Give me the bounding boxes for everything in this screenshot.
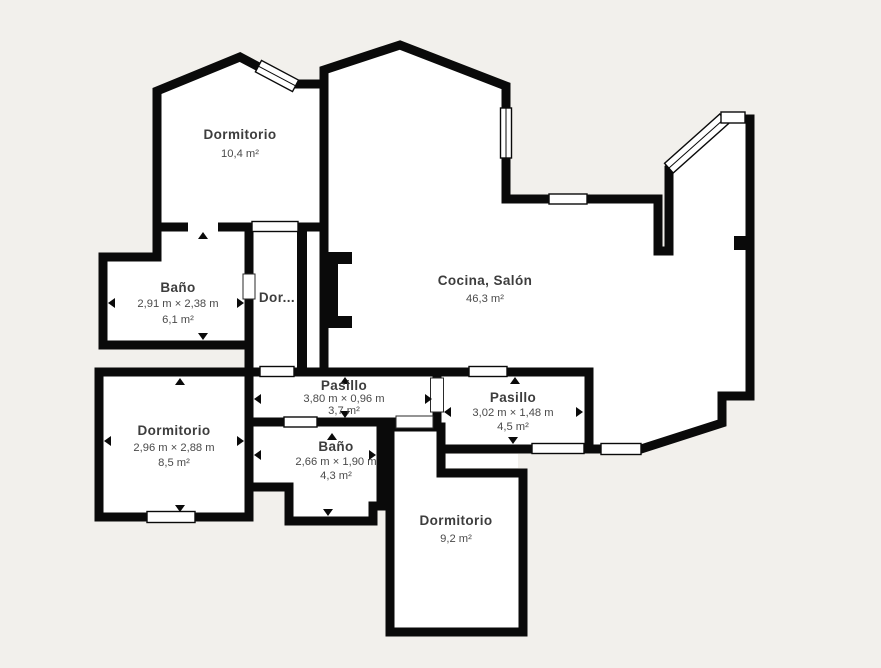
room-label-area: 8,5 m² <box>158 457 190 469</box>
window-right-hall-top <box>469 367 507 377</box>
room-label-dimensions: 3,02 m × 1,48 m <box>472 407 553 419</box>
room-label-area: 9,2 m² <box>440 533 472 545</box>
room-label-name: Dormitorio <box>204 127 277 142</box>
floorplan: Dormitorio 10,4 m² Cocina, Salón 46,3 m²… <box>0 0 881 668</box>
room-label-area: 4,5 m² <box>497 421 529 433</box>
opening-banio-top <box>188 223 218 232</box>
room-label-area: 4,3 m² <box>320 470 352 482</box>
window-central-hall-top <box>260 367 294 377</box>
window-right-hall-bottom <box>532 444 584 454</box>
room-label-name: Baño <box>160 280 195 295</box>
wall-pillar-stub <box>734 236 750 250</box>
room-dormitorio-topleft <box>157 57 324 227</box>
room-label-dimensions: 2,96 m × 2,88 m <box>133 442 214 454</box>
room-label-name: Baño <box>318 439 353 454</box>
room-label-name: Dormitorio <box>420 513 493 528</box>
door-dor-room <box>243 274 255 299</box>
room-label-dimensions: 2,91 m × 2,38 m <box>137 298 218 310</box>
door-hall-to-bedroom <box>396 416 433 428</box>
room-label-name: Dor... <box>259 290 295 305</box>
room-label-dimensions: 3,80 m × 0,96 m <box>303 393 384 405</box>
window-dor-room-top <box>252 222 298 232</box>
room-label-area: 10,4 m² <box>221 148 259 160</box>
window-banio-bottom-top <box>284 417 317 427</box>
room-label-area: 3,7 m² <box>328 405 360 417</box>
room-label-area: 6,1 m² <box>162 314 194 326</box>
window-topright <box>721 112 745 123</box>
room-label-name: Cocina, Salón <box>438 273 532 288</box>
room-label-name: Dormitorio <box>138 423 211 438</box>
walls <box>99 45 750 632</box>
room-label-dimensions: 2,66 m × 1,90 m <box>295 456 376 468</box>
window-bedroom-bottomleft <box>147 512 195 523</box>
room-label-area: 46,3 m² <box>466 293 504 305</box>
window-kitchen-bottom <box>601 444 641 455</box>
door-hallway-junction <box>431 378 444 412</box>
room-label-name: Pasillo <box>490 390 536 405</box>
shaft-strip <box>446 454 518 468</box>
window-kitchen-top <box>549 194 587 204</box>
floorplan-canvas: Dormitorio 10,4 m² Cocina, Salón 46,3 m²… <box>0 0 881 668</box>
room-label-name: Pasillo <box>321 378 367 393</box>
room-banio-bottom <box>249 422 381 521</box>
